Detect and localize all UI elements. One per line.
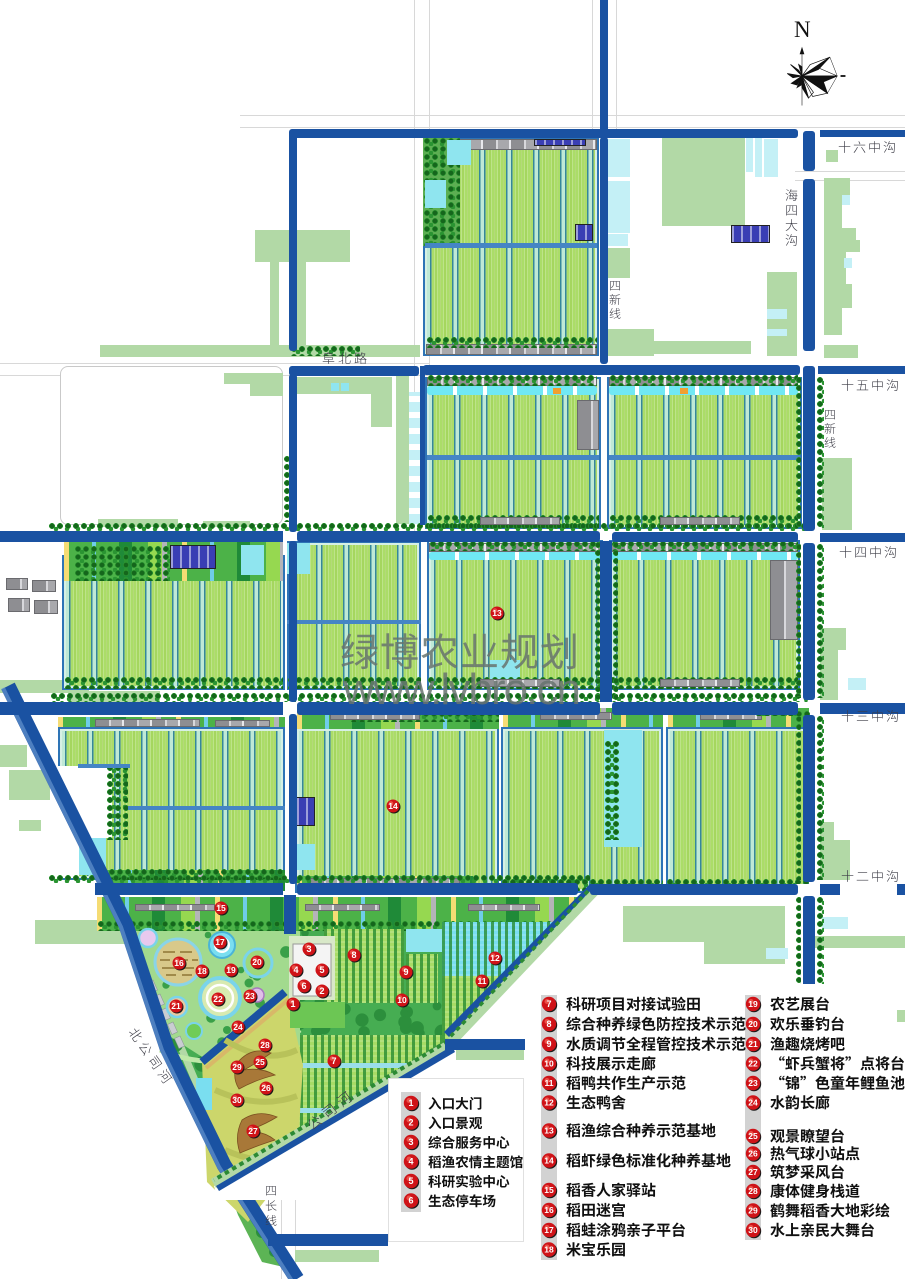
svg-text:18: 18 xyxy=(197,966,207,976)
svg-text:9: 9 xyxy=(546,1039,551,1049)
svg-text:24: 24 xyxy=(233,1022,243,1032)
svg-text:12: 12 xyxy=(490,953,500,963)
svg-text:30: 30 xyxy=(748,1225,758,1235)
svg-text:29: 29 xyxy=(748,1206,758,1216)
svg-text:14: 14 xyxy=(544,1156,554,1166)
svg-text:5: 5 xyxy=(408,1176,413,1186)
svg-text:3: 3 xyxy=(408,1137,413,1147)
svg-text:28: 28 xyxy=(748,1186,758,1196)
svg-text:1: 1 xyxy=(408,1098,413,1108)
svg-text:2: 2 xyxy=(319,986,324,996)
svg-text:4: 4 xyxy=(408,1157,413,1167)
svg-text:25: 25 xyxy=(748,1131,758,1141)
svg-text:8: 8 xyxy=(351,950,356,960)
svg-text:26: 26 xyxy=(261,1083,271,1093)
svg-text:6: 6 xyxy=(408,1196,413,1206)
svg-text:14: 14 xyxy=(388,801,398,811)
svg-text:30: 30 xyxy=(232,1095,242,1105)
svg-text:19: 19 xyxy=(748,999,758,1009)
svg-text:24: 24 xyxy=(748,1098,758,1108)
svg-text:www.lvbro.cn: www.lvbro.cn xyxy=(342,665,581,714)
svg-text:21: 21 xyxy=(171,1001,181,1011)
svg-text:8: 8 xyxy=(546,1019,551,1029)
svg-text:11: 11 xyxy=(478,976,487,986)
svg-text:21: 21 xyxy=(748,1039,758,1049)
svg-text:22: 22 xyxy=(748,1059,758,1069)
svg-text:18: 18 xyxy=(544,1245,554,1255)
svg-text:10: 10 xyxy=(544,1059,554,1069)
svg-text:27: 27 xyxy=(248,1126,258,1136)
svg-text:11: 11 xyxy=(545,1078,554,1088)
svg-text:25: 25 xyxy=(255,1057,265,1067)
svg-text:5: 5 xyxy=(319,965,324,975)
svg-text:9: 9 xyxy=(403,967,408,977)
svg-text:26: 26 xyxy=(748,1149,758,1159)
svg-text:1: 1 xyxy=(290,999,295,1009)
svg-text:10: 10 xyxy=(397,995,407,1005)
svg-text:7: 7 xyxy=(546,999,551,1009)
svg-text:13: 13 xyxy=(492,608,502,618)
svg-text:12: 12 xyxy=(544,1098,554,1108)
svg-text:13: 13 xyxy=(544,1126,554,1136)
svg-text:29: 29 xyxy=(232,1062,242,1072)
svg-text:19: 19 xyxy=(226,965,236,975)
svg-text:28: 28 xyxy=(260,1040,270,1050)
svg-text:23: 23 xyxy=(245,991,255,1001)
svg-text:20: 20 xyxy=(252,957,262,967)
svg-text:16: 16 xyxy=(544,1205,554,1215)
svg-text:17: 17 xyxy=(215,937,225,947)
svg-text:27: 27 xyxy=(748,1167,758,1177)
svg-text:15: 15 xyxy=(216,903,226,913)
svg-text:7: 7 xyxy=(331,1056,336,1066)
svg-text:2: 2 xyxy=(408,1118,413,1128)
svg-text:15: 15 xyxy=(544,1185,554,1195)
svg-text:22: 22 xyxy=(213,994,223,1004)
svg-text:6: 6 xyxy=(301,981,306,991)
svg-text:17: 17 xyxy=(544,1225,554,1235)
svg-text:N: N xyxy=(794,17,811,42)
svg-text:3: 3 xyxy=(306,944,311,954)
svg-text:4: 4 xyxy=(293,965,298,975)
svg-text:20: 20 xyxy=(748,1019,758,1029)
svg-text:16: 16 xyxy=(174,958,184,968)
svg-text:23: 23 xyxy=(748,1078,758,1088)
